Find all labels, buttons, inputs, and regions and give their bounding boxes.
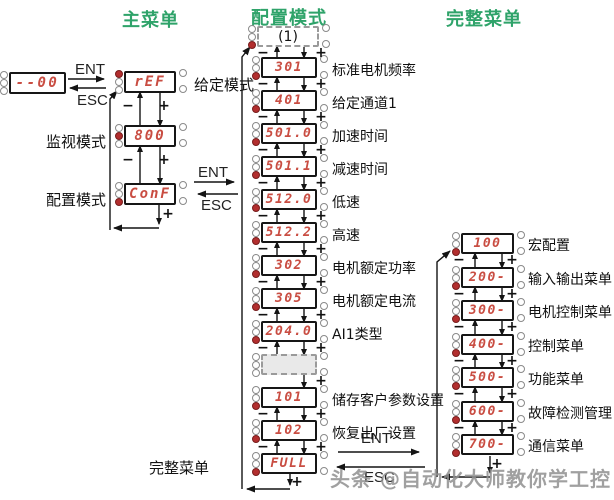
plus-key: + [313, 276, 329, 288]
plus-key: + [156, 154, 172, 166]
full-item-label-5: 故障检测管理 [528, 403, 612, 423]
config-display-501-1-led [252, 163, 260, 171]
config-display-102-led [252, 427, 260, 435]
config-display-512-0-led [252, 196, 260, 204]
config-display-full: FULL [261, 453, 317, 474]
full-display-400-value: 400- [469, 337, 506, 352]
minus-key: − [255, 243, 271, 255]
minus-key: − [451, 288, 467, 300]
full-display-700-value: 700- [469, 437, 506, 452]
config-display-305: 305 [261, 288, 317, 309]
config-display-301-led [252, 64, 260, 72]
full-display-500-led [452, 374, 460, 382]
initial-display-value: --00 [16, 75, 60, 91]
config-display-512-2-value: 512.2 [266, 225, 313, 240]
full-display-700-led-red [452, 449, 460, 457]
minus-key: − [255, 441, 271, 453]
full-display-600-led [517, 399, 525, 407]
config-item-label-6: 电机额定功率 [332, 258, 416, 278]
config-display-401-led [252, 97, 260, 105]
config-item-label-2: 加速时间 [332, 126, 388, 146]
minus-key: − [255, 144, 271, 156]
plus-key: + [313, 47, 329, 59]
config-display-full-value: FULL [270, 456, 307, 471]
mode-display-ref-led [179, 69, 187, 77]
full-display-300-value: 300- [469, 303, 506, 318]
config-hidden-section-box-led [252, 361, 260, 369]
full-display-300: 300- [461, 300, 514, 321]
config-display-102: 102 [261, 420, 317, 441]
plus-key: + [160, 208, 176, 220]
config-display-302-led [252, 262, 260, 270]
full-display-200: 200- [461, 267, 514, 288]
full-item-label-1: 输入输出菜单 [528, 269, 612, 289]
mode-display-conf: ConF [124, 183, 176, 205]
plus-key: + [313, 441, 329, 453]
plus-key: + [504, 288, 520, 300]
minus-key: − [255, 408, 271, 420]
ent-key-label-1: ENT [75, 61, 105, 78]
mode-display-800-led [179, 123, 187, 131]
mode-display-conf-led [115, 182, 123, 190]
minus-key: − [255, 177, 271, 189]
minus-key: − [120, 154, 136, 166]
config-entry-box-led [248, 25, 256, 33]
plus-key: + [313, 210, 329, 222]
config-display-512-0: 512.0 [261, 189, 317, 210]
config-item-label-4: 低速 [332, 192, 360, 212]
full-display-700: 700- [461, 434, 514, 455]
full-display-600-led [452, 408, 460, 416]
config-item-label-5: 高速 [332, 225, 360, 245]
full-display-100-led [452, 232, 460, 240]
config-display-501-1-value: 501.1 [266, 159, 313, 174]
plus-key: + [313, 78, 329, 90]
plus-key: + [504, 321, 520, 333]
config-display-305-value: 305 [275, 291, 303, 306]
config-item-label-11: 恢复出厂设置 [332, 423, 416, 443]
plus-key: + [313, 144, 329, 156]
ref-mode-label: 给定模式 [194, 74, 254, 95]
plus-key: + [289, 476, 305, 488]
minus-key: − [451, 388, 467, 400]
ent-key-label-2: ENT [198, 164, 228, 181]
full-display-600: 600- [461, 401, 514, 422]
plus-key: + [313, 375, 329, 387]
config-display-204-0-value: 204.0 [266, 324, 313, 339]
plus-key: + [313, 177, 329, 189]
mode-display-ref-led [115, 78, 123, 86]
full-display-100: 100 [461, 233, 514, 254]
config-display-301-value: 301 [275, 60, 303, 75]
mode-display-800-led-red [115, 132, 123, 140]
mode-display-800: 800 [124, 125, 176, 147]
config-entry-box-value: (1) [278, 29, 298, 45]
mode-display-ref-led [115, 86, 123, 94]
minus-key: − [120, 100, 136, 112]
plus-key: + [489, 458, 505, 470]
full-display-200-led [452, 274, 460, 282]
full-display-100-value: 100 [474, 236, 502, 251]
plus-key: + [504, 388, 520, 400]
config-item-label-1: 给定通道1 [332, 93, 397, 113]
full-item-label-2: 电机控制菜单 [528, 302, 612, 322]
mode-display-conf-value: ConF [129, 186, 171, 202]
minus-key: − [451, 355, 467, 367]
full-display-500-value: 500- [469, 370, 506, 385]
config-display-302-value: 302 [275, 258, 303, 273]
full-item-label-3: 控制菜单 [528, 336, 584, 356]
mode-display-800-led [115, 124, 123, 132]
full-display-100-led [517, 231, 525, 239]
minus-key: − [255, 342, 271, 354]
menu-structure-diagram: 主菜单 配置模式 完整菜单 ENT ESC ENT ESC ENT ESC 头条… [0, 0, 614, 500]
plus-key: + [313, 111, 329, 123]
mode-display-conf-led [179, 181, 187, 189]
config-item-label-8: AI1类型 [332, 324, 383, 344]
config-mode-label: 配置模式 [46, 189, 106, 210]
minus-key: − [451, 321, 467, 333]
watermark-text: 头条 @自动化大师教你学工控 [330, 463, 611, 492]
mode-display-conf-led [115, 190, 123, 198]
config-display-101: 101 [261, 387, 317, 408]
monitor-mode-label: 监视模式 [46, 131, 106, 152]
plus-key: + [504, 355, 520, 367]
config-display-512-2: 512.2 [261, 222, 317, 243]
mode-display-conf-led-red [115, 198, 123, 206]
mode-display-ref-value: rEF [134, 74, 165, 90]
mode-display-ref-led [179, 85, 187, 93]
config-display-501-0: 501.0 [261, 123, 317, 144]
mode-display-800-value: 800 [134, 128, 165, 144]
full-display-600-value: 600- [469, 404, 506, 419]
config-display-full-led-red [252, 468, 260, 476]
config-hidden-section-box [261, 354, 317, 375]
full-display-200-value: 200- [469, 270, 506, 285]
plus-key: + [504, 422, 520, 434]
config-display-302: 302 [261, 255, 317, 276]
minus-key: − [255, 309, 271, 321]
config-entry-box: (1) [257, 26, 319, 47]
full-display-400-led [452, 341, 460, 349]
plus-key: + [313, 342, 329, 354]
config-display-102-value: 102 [275, 423, 303, 438]
config-display-204-0: 204.0 [261, 321, 317, 342]
full-item-label-6: 通信菜单 [528, 436, 584, 456]
config-item-label-7: 电机额定电流 [332, 291, 416, 311]
config-entry-box-led [248, 33, 256, 41]
config-item-label-0: 标准电机频率 [332, 60, 416, 80]
full-display-200-led [517, 265, 525, 273]
minus-key: − [451, 254, 467, 266]
initial-display-led [0, 79, 8, 87]
mode-display-ref: rEF [124, 71, 176, 93]
config-display-101-led [252, 386, 260, 394]
config-display-501-1: 501.1 [261, 156, 317, 177]
plus-key: + [313, 408, 329, 420]
initial-display-led [0, 87, 8, 95]
mode-display-800-led [115, 140, 123, 148]
full-item-label-4: 功能菜单 [528, 369, 584, 389]
full-display-400-led [517, 332, 525, 340]
config-entry-box-led [322, 24, 330, 32]
minus-key: − [255, 210, 271, 222]
full-display-400: 400- [461, 334, 514, 355]
mode-display-800-led [179, 139, 187, 147]
minus-key: − [451, 422, 467, 434]
minus-key: − [255, 111, 271, 123]
full-display-700-led [452, 441, 460, 449]
config-display-401-value: 401 [275, 93, 303, 108]
config-item-label-10: 储存客户参数设置 [332, 390, 444, 410]
minus-key: − [255, 78, 271, 90]
full-menu-exit-label: 完整菜单 [149, 457, 209, 478]
config-display-101-led [252, 394, 260, 402]
config-display-512-0-value: 512.0 [266, 192, 313, 207]
plus-key: + [313, 309, 329, 321]
config-display-501-0-led [252, 130, 260, 138]
minus-key: − [255, 276, 271, 288]
full-menu-title: 完整菜单 [446, 5, 522, 31]
main-menu-title: 主菜单 [122, 6, 179, 32]
full-display-500: 500- [461, 367, 514, 388]
full-display-100-led [452, 240, 460, 248]
plus-key: + [504, 254, 520, 266]
full-item-label-0: 宏配置 [528, 235, 570, 255]
config-display-305-led [252, 295, 260, 303]
plus-key: + [156, 100, 172, 112]
config-display-512-2-led [252, 229, 260, 237]
config-item-label-3: 减速时间 [332, 159, 388, 179]
mode-display-ref-led-red [115, 70, 123, 78]
mode-display-conf-led [179, 197, 187, 205]
plus-key: + [313, 243, 329, 255]
config-display-501-0-value: 501.0 [266, 126, 313, 141]
full-display-700-led [517, 448, 525, 456]
initial-display: --00 [9, 72, 66, 94]
config-display-401: 401 [261, 90, 317, 111]
minus-key: − [255, 47, 271, 59]
esc-key-label-2: ESC [201, 197, 232, 214]
config-display-101-value: 101 [275, 390, 303, 405]
config-display-204-0-led [252, 328, 260, 336]
config-display-full-led [252, 460, 260, 468]
config-display-301: 301 [261, 57, 317, 78]
initial-display-led [0, 71, 8, 79]
full-display-300-led [452, 307, 460, 315]
config-hidden-section-box-led [252, 369, 260, 377]
config-display-full-led [320, 467, 328, 475]
esc-key-label-1: ESC [77, 92, 108, 109]
